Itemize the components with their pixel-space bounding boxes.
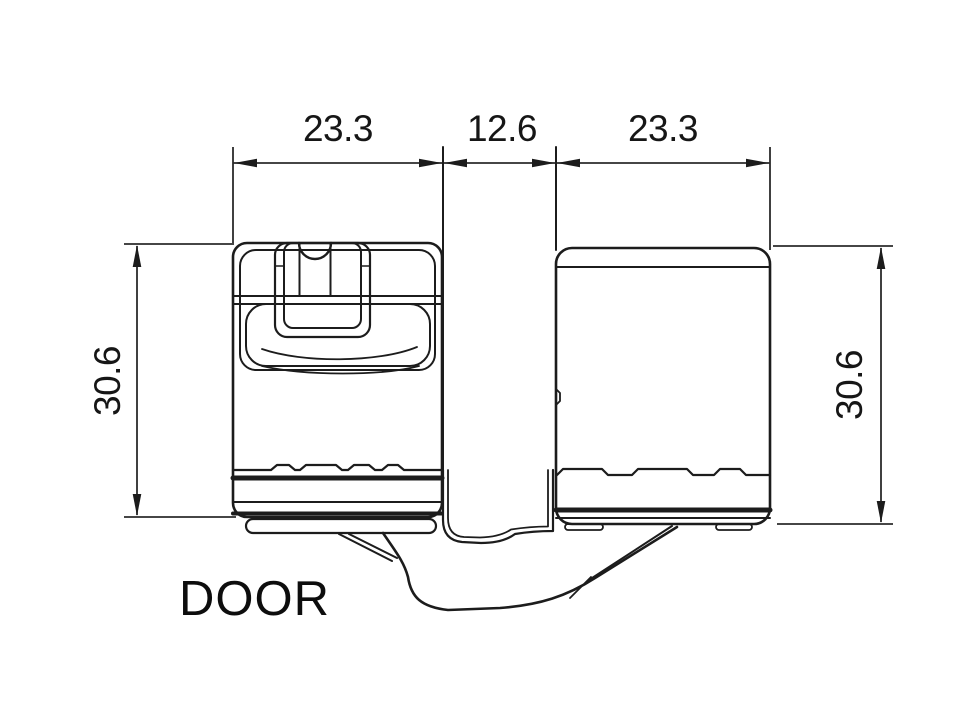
arrow-icon xyxy=(746,159,769,168)
left-dimension-group: 30.6 xyxy=(87,244,236,517)
center-link-piece xyxy=(443,147,556,543)
cushion-lip-inner xyxy=(262,347,417,359)
strut-line-outer xyxy=(339,534,392,561)
cup-cushion-outline xyxy=(246,304,430,366)
arrow-icon xyxy=(234,159,257,168)
dimension-label-top-center: 12.6 xyxy=(467,108,537,149)
arm-notch-line xyxy=(570,577,591,598)
hinge-drawing-svg: 23.3 12.6 23.3 30.6 30.6 xyxy=(0,0,960,720)
tab-parting-line xyxy=(556,469,770,475)
arm-rise-inner-line xyxy=(589,526,672,580)
dimension-label-top-left: 23.3 xyxy=(303,108,373,149)
dimension-label-left-height: 30.6 xyxy=(87,346,128,416)
door-side-hinge-body xyxy=(233,243,442,533)
top-dimension-group: 23.3 12.6 23.3 xyxy=(233,108,770,250)
body-outer-outline xyxy=(556,248,770,524)
base-foot-left xyxy=(565,524,603,530)
strut-line-inner xyxy=(349,534,397,558)
arrow-icon xyxy=(532,159,555,168)
tab-parting-line xyxy=(233,465,442,470)
frame-side-hinge-body xyxy=(556,248,770,530)
arrow-icon xyxy=(877,247,886,269)
door-label: DOOR xyxy=(179,572,330,626)
dimension-label-right-height: 30.6 xyxy=(829,350,870,420)
link-tongue-outer xyxy=(443,470,553,543)
dimension-label-top-right: 23.3 xyxy=(628,108,698,149)
arm-bowl-outline xyxy=(383,527,677,610)
arrow-icon xyxy=(133,245,142,267)
base-foot-right xyxy=(716,524,752,530)
arrow-icon xyxy=(444,159,467,168)
mounting-plate xyxy=(246,519,436,533)
arrow-icon xyxy=(419,159,442,168)
arrow-icon xyxy=(877,501,886,523)
center-slot-inner xyxy=(284,243,361,328)
technical-drawing-sheet: 23.3 12.6 23.3 30.6 30.6 xyxy=(0,0,960,720)
arrow-icon xyxy=(557,159,580,168)
arrow-icon xyxy=(133,494,142,516)
right-dimension-group: 30.6 xyxy=(773,246,893,524)
link-tongue-inner xyxy=(448,470,548,538)
